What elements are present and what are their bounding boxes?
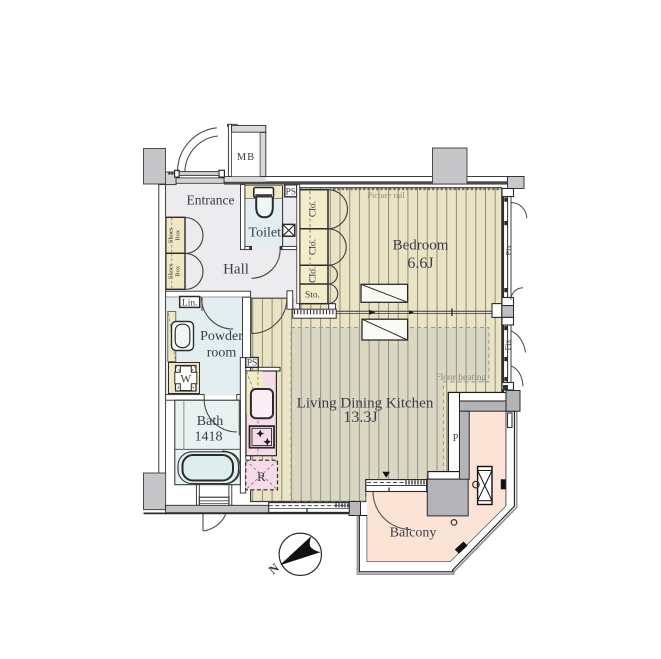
svg-text:Powder: Powder (200, 329, 243, 344)
svg-text:Shoes: Shoes (167, 227, 174, 243)
svg-text:MB: MB (237, 152, 255, 163)
svg-text:Hall: Hall (223, 262, 249, 278)
svg-text:Clo.: Clo. (309, 267, 319, 283)
svg-text:R: R (257, 469, 266, 484)
svg-text:Picture rail: Picture rail (367, 190, 405, 200)
svg-text:Clo.: Clo. (309, 201, 319, 217)
svg-text:Box: Box (174, 229, 181, 241)
svg-text:W: W (180, 374, 191, 386)
svg-text:Shoes: Shoes (167, 263, 174, 279)
svg-text:Sto.: Sto. (305, 291, 320, 301)
svg-text:P: P (453, 433, 459, 444)
svg-text:room: room (207, 346, 237, 361)
svg-text:Lin.: Lin. (182, 298, 198, 308)
svg-text:Entrance: Entrance (187, 193, 235, 208)
svg-text:Bath: Bath (197, 414, 223, 429)
svg-text:Clo.: Clo. (309, 239, 319, 255)
svg-text:Floor heating: Floor heating (435, 373, 486, 383)
svg-text:Fix: Fix (504, 340, 513, 351)
svg-text:1418: 1418 (195, 430, 223, 445)
svg-text:6.6J: 6.6J (407, 255, 433, 272)
svg-text:Fix: Fix (505, 245, 514, 256)
svg-text:Box: Box (174, 265, 181, 277)
svg-text:PS: PS (247, 358, 258, 368)
svg-text:Toilet: Toilet (249, 226, 282, 241)
svg-text:PS: PS (286, 187, 297, 197)
svg-text:Balcony: Balcony (390, 526, 437, 541)
svg-text:13.3J: 13.3J (343, 409, 377, 426)
svg-text:Bedroom: Bedroom (393, 238, 449, 254)
